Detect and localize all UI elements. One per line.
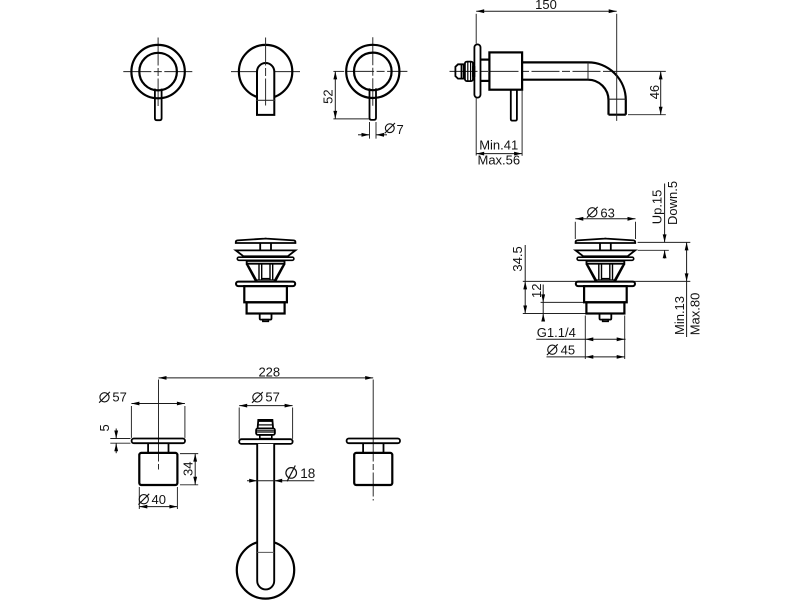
svg-text:Max.56: Max.56 bbox=[478, 152, 521, 167]
svg-text:34.5: 34.5 bbox=[510, 246, 525, 271]
svg-text:12: 12 bbox=[529, 284, 544, 298]
svg-text:63: 63 bbox=[600, 206, 614, 221]
svg-text:40: 40 bbox=[152, 492, 166, 507]
svg-text:Max.80: Max.80 bbox=[687, 293, 702, 336]
svg-text:45: 45 bbox=[561, 342, 575, 357]
svg-text:G1.1/4: G1.1/4 bbox=[537, 325, 576, 340]
svg-text:18: 18 bbox=[300, 466, 315, 481]
svg-text:52: 52 bbox=[321, 89, 336, 103]
svg-text:46: 46 bbox=[647, 85, 662, 99]
svg-text:7: 7 bbox=[397, 122, 404, 137]
svg-text:57: 57 bbox=[112, 390, 126, 405]
svg-text:228: 228 bbox=[258, 364, 280, 379]
svg-text:Min.41: Min.41 bbox=[479, 138, 518, 153]
svg-text:Down.5: Down.5 bbox=[665, 181, 680, 225]
svg-text:Up.15: Up.15 bbox=[650, 190, 665, 225]
svg-text:150: 150 bbox=[535, 0, 557, 12]
svg-text:34: 34 bbox=[180, 462, 195, 476]
svg-text:5: 5 bbox=[97, 424, 112, 431]
svg-text:57: 57 bbox=[265, 390, 279, 405]
svg-text:Min.13: Min.13 bbox=[672, 296, 687, 335]
